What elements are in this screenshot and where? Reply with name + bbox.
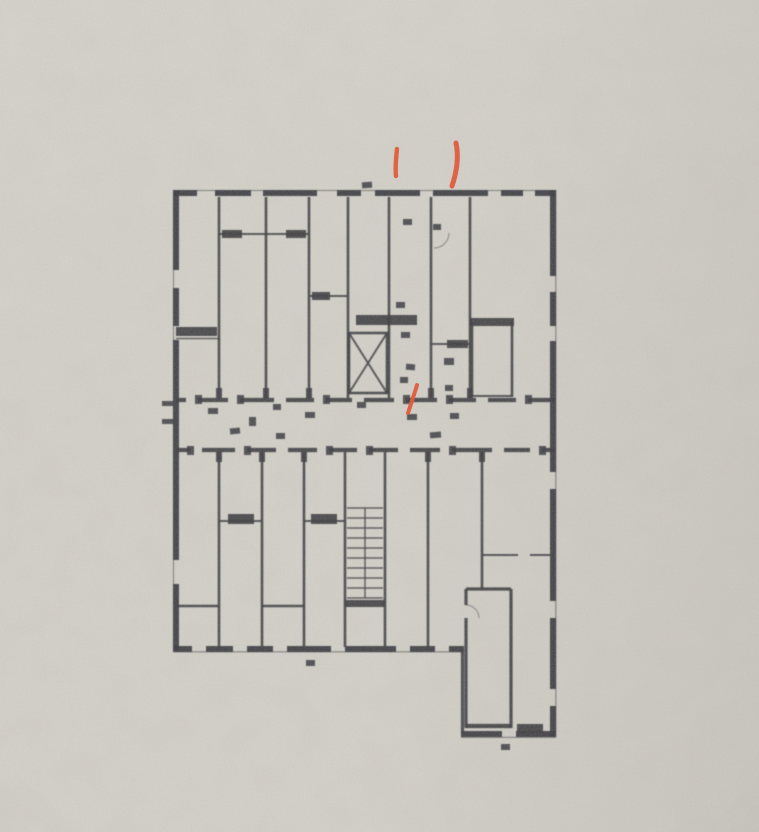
paper-photo (0, 0, 759, 832)
grain-light (0, 0, 759, 832)
floor-plan (0, 0, 759, 832)
